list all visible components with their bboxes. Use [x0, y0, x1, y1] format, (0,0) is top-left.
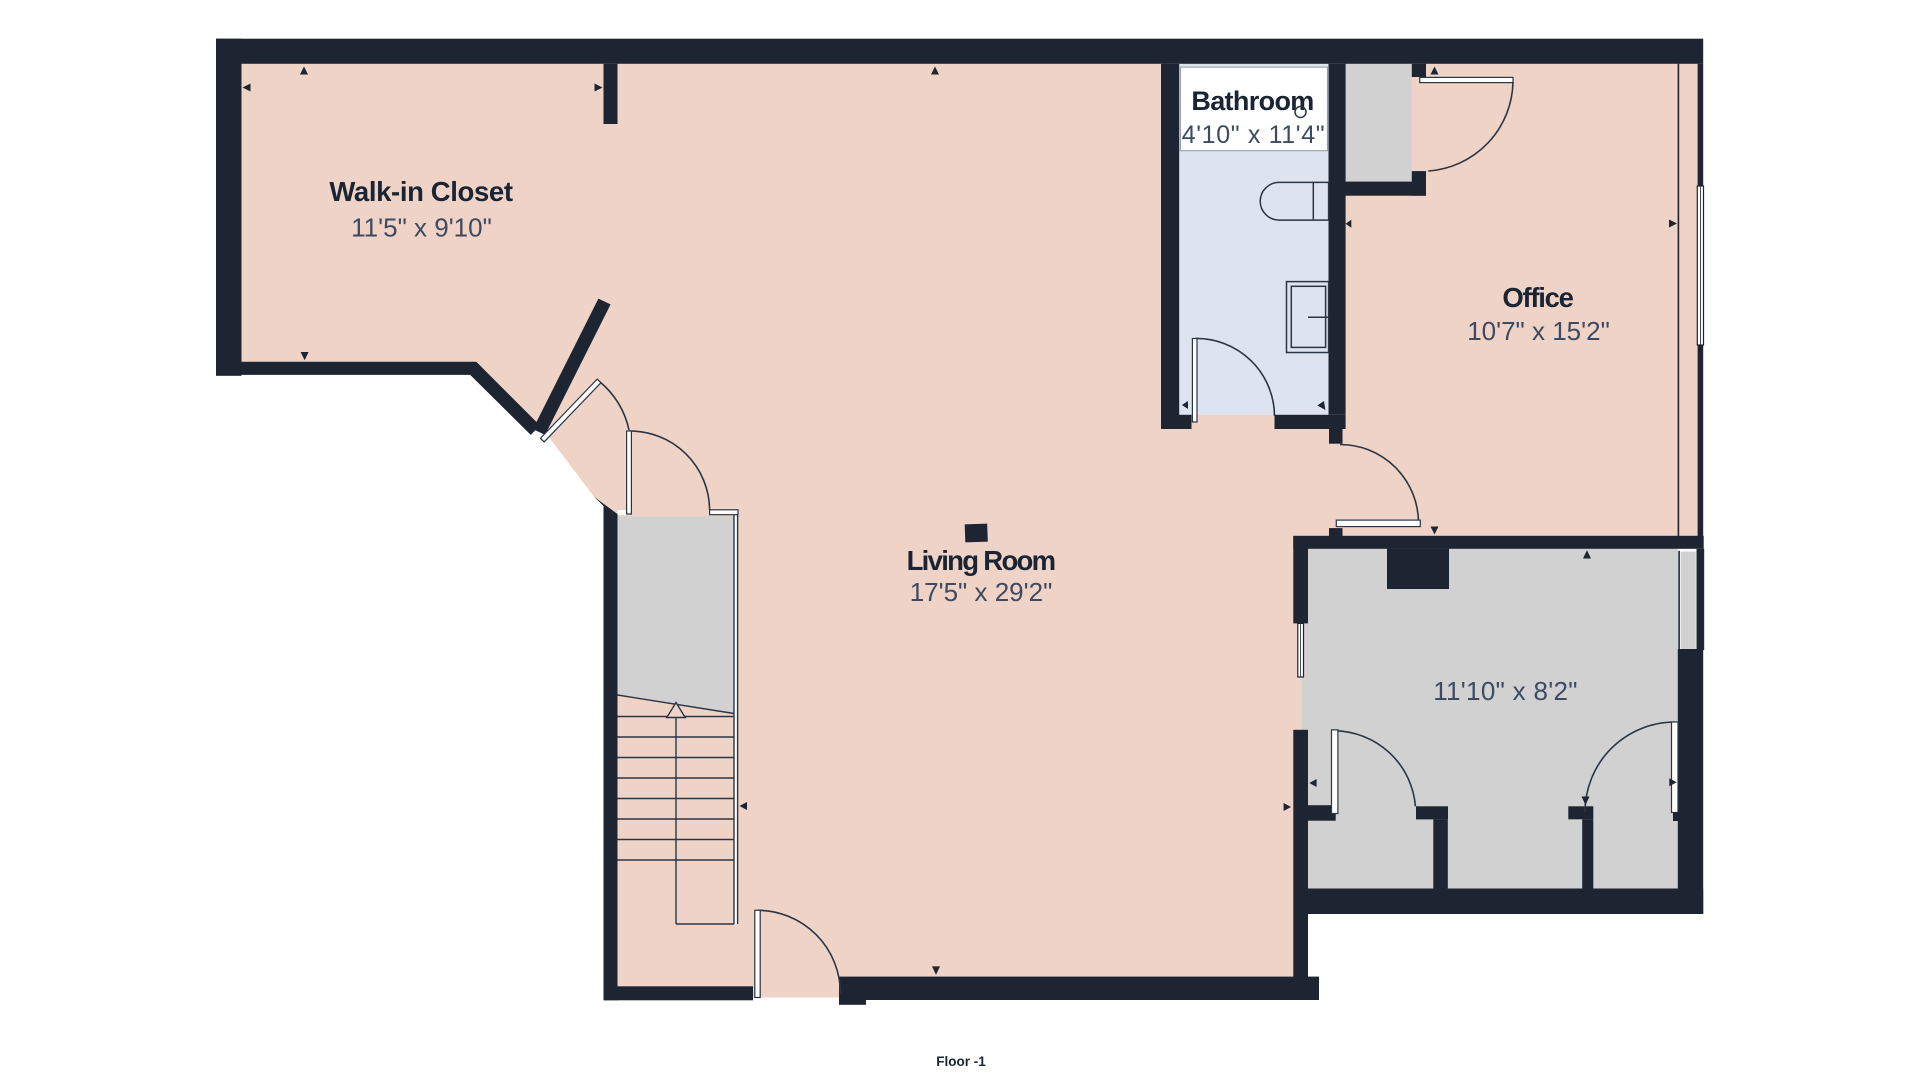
- svg-text:Walk-in Closet: Walk-in Closet: [329, 176, 512, 207]
- svg-text:11'10" x 8'2": 11'10" x 8'2": [1433, 676, 1578, 706]
- svg-text:Living Room: Living Room: [907, 545, 1055, 576]
- svg-text:Office: Office: [1502, 282, 1573, 313]
- svg-text:4'10" x 11'4": 4'10" x 11'4": [1182, 121, 1326, 149]
- svg-text:10'7" x 15'2": 10'7" x 15'2": [1467, 316, 1610, 346]
- svg-text:17'5" x 29'2": 17'5" x 29'2": [910, 577, 1053, 607]
- svg-text:Floor -1: Floor -1: [936, 1054, 986, 1069]
- svg-text:11'5" x 9'10": 11'5" x 9'10": [351, 213, 492, 243]
